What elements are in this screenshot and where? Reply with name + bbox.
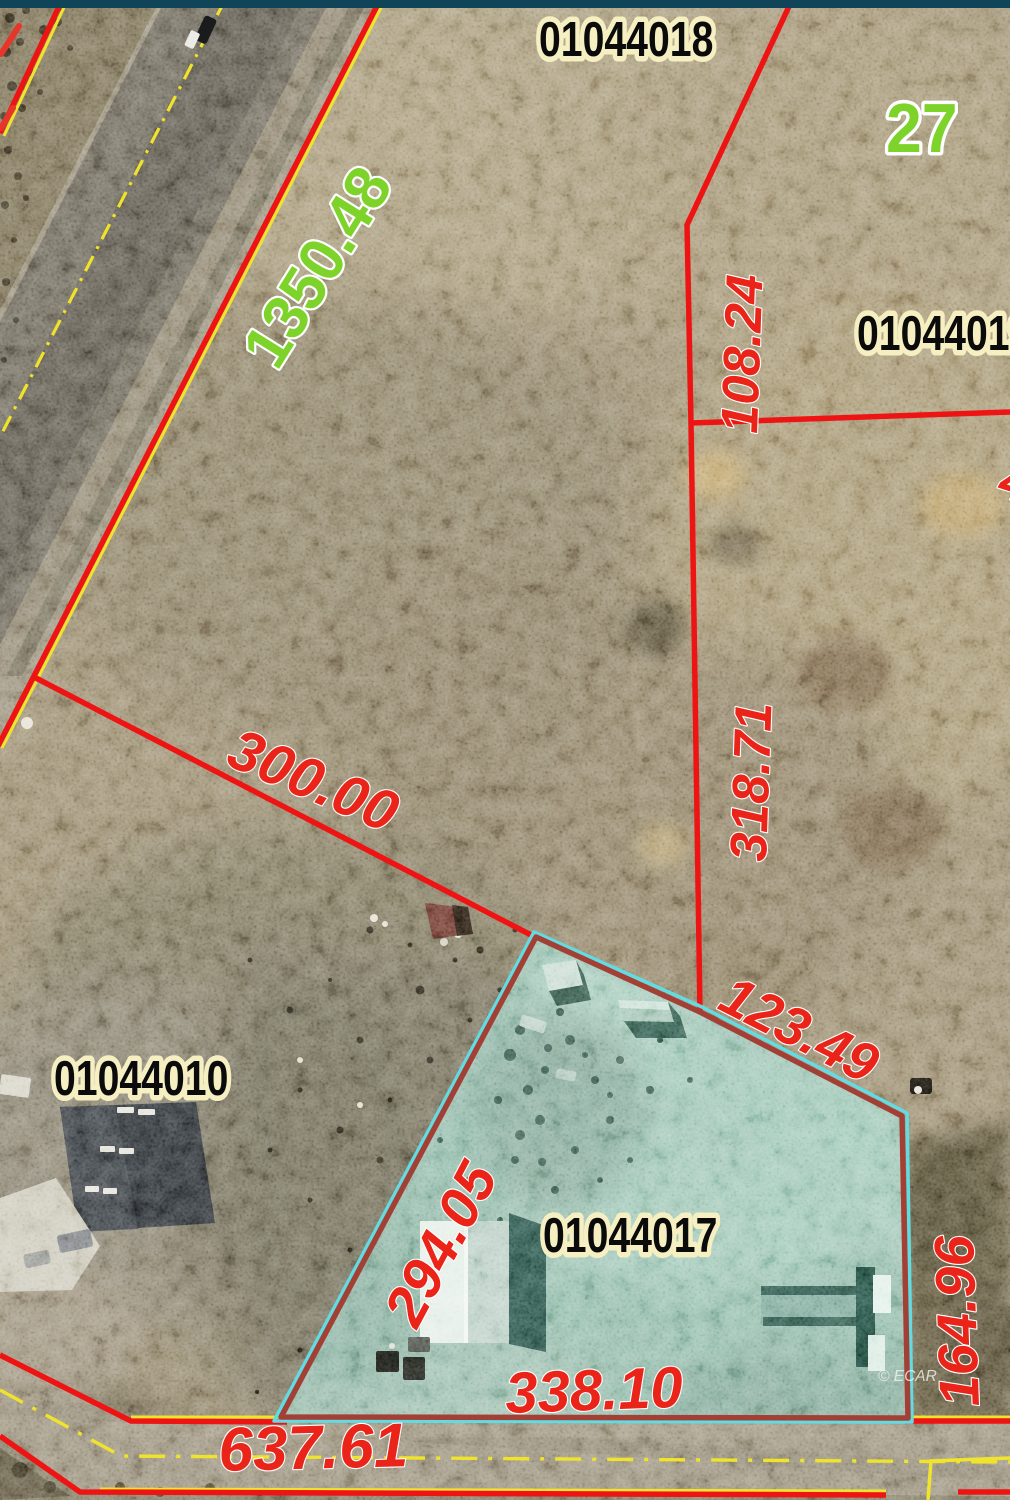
svg-text:27: 27 — [886, 90, 958, 168]
svg-text:01044019: 01044019 — [857, 307, 1010, 361]
svg-text:108.24: 108.24 — [711, 273, 775, 434]
svg-text:637.61: 637.61 — [218, 1411, 409, 1485]
svg-text:© ECAR: © ECAR — [878, 1368, 937, 1385]
svg-text:318.71: 318.71 — [720, 701, 784, 862]
svg-text:01044017: 01044017 — [543, 1209, 717, 1263]
svg-text:01044010: 01044010 — [54, 1052, 228, 1106]
svg-text:01044018: 01044018 — [539, 13, 713, 67]
svg-text:338.10: 338.10 — [504, 1355, 684, 1426]
